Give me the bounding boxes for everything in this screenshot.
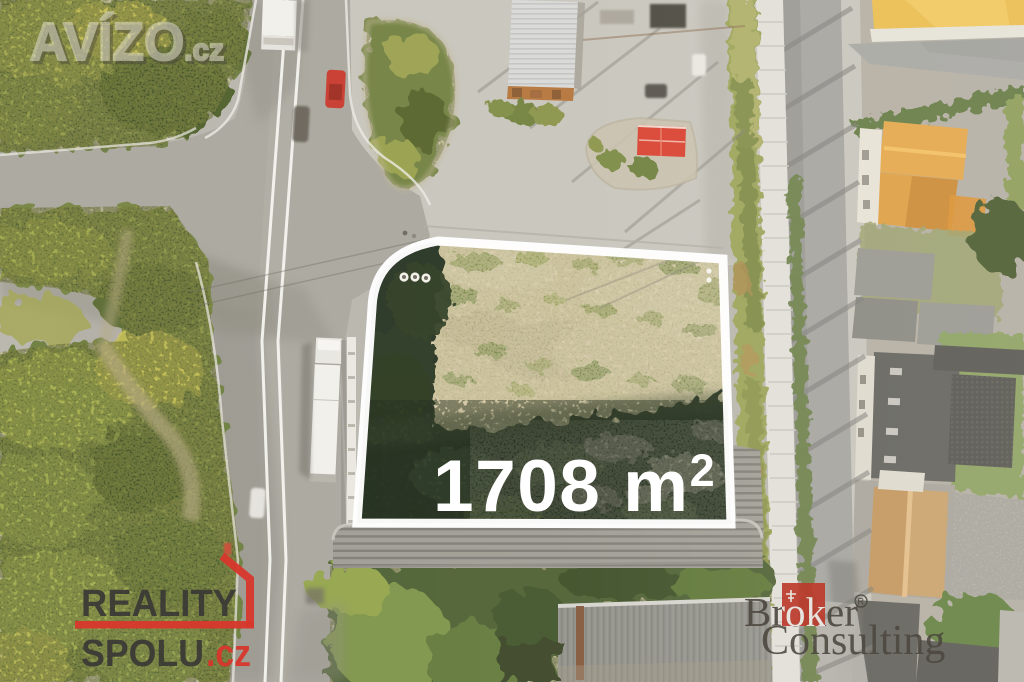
svg-text:REALITY: REALITY: [81, 583, 237, 625]
svg-text:.cz: .cz: [206, 633, 251, 675]
svg-text:Consulting: Consulting: [761, 618, 945, 664]
svg-text:R: R: [858, 597, 865, 607]
svg-text:SPOLU: SPOLU: [81, 633, 204, 675]
